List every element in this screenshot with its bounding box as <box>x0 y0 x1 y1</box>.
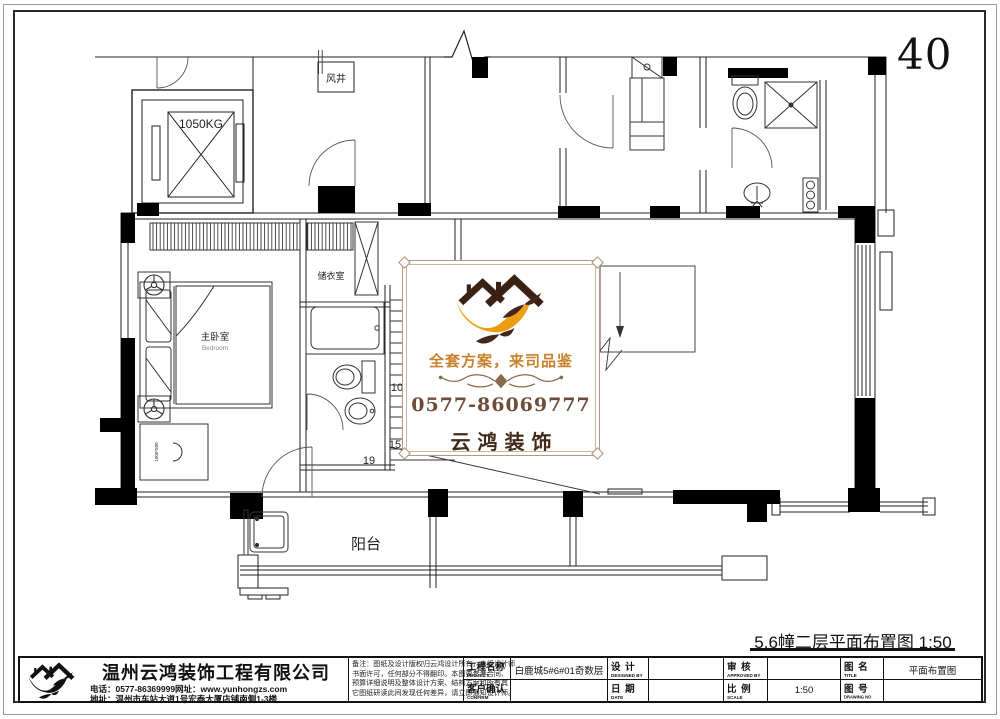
sheet-title-value: 平面布置图 <box>884 663 981 677</box>
date-label-cell: 日 期 DATE <box>607 679 648 701</box>
project-value: 白鹿城5#6#01奇数层 <box>511 663 607 677</box>
watermark-brand: 云鸿装饰 <box>444 426 559 455</box>
title-block-divider <box>348 658 349 701</box>
stair-number-19: 19 <box>363 455 375 467</box>
drawing-sheet: 40 <box>0 0 1000 719</box>
approved-label: 审 核 <box>727 659 767 673</box>
project-value-cell: 白鹿城5#6#01奇数层 <box>510 658 607 679</box>
project-label-cell: 工程名称 PROJECT <box>463 658 510 679</box>
master-bedroom-en-label: Bedroom <box>202 345 228 352</box>
confirm-label-en: CONFIRM <box>467 695 510 700</box>
storage-room-label: 储衣室 <box>317 270 344 281</box>
note-line: 预算详细说明及整体设计方案、结构方案和所有其 <box>352 679 464 689</box>
confirm-value-cell <box>510 679 607 701</box>
cabinet-size-label: 1000*500 <box>154 442 159 462</box>
designed-label-cell: 设 计 DESIGNED BY <box>607 658 648 679</box>
designed-label-en: DESIGNED BY <box>611 673 648 678</box>
company-info: 温州云鸿装饰工程有限公司 电话：0577-86369999网址：www.yunh… <box>84 658 348 701</box>
company-address: 地址：温州市车站大道1号宏泰大厦店铺南侧1-3楼 <box>90 695 348 705</box>
sheet-title-label: 图 名 <box>844 659 883 673</box>
balcony-label: 阳台 <box>351 536 381 553</box>
approved-value-cell <box>767 658 840 679</box>
designed-value-cell <box>648 658 723 679</box>
confirm-label: 客户确认 <box>467 681 510 695</box>
company-name: 温州云鸿装饰工程有限公司 <box>84 659 348 685</box>
title-block: 温州云鸿装饰工程有限公司 电话：0577-86369999网址：www.yunh… <box>18 656 983 703</box>
drawing-no-label-en: DRAWING NO <box>844 695 879 700</box>
drawing-no-label: 图 号 <box>844 681 883 695</box>
copyright-notes: 备注：图纸及设计版权归云鸿设计所有，未经设计师 书面许可，任何部分不得翻印。本图… <box>352 660 464 698</box>
title-block-logo-icon <box>24 661 80 701</box>
plan-labels: 1050KG 风井 储衣室 主卧室 Bedroom 阳台 5 10 15 19 … <box>154 72 408 553</box>
drawing-no-value-cell <box>883 679 981 701</box>
note-line: 它图纸研读此间发现任何差异，请立即通知设计师。 <box>352 689 464 699</box>
sheet-title-label-cell: 图 名 TITLE <box>840 658 883 679</box>
elevator-capacity-label: 1050KG <box>179 117 223 131</box>
company-logo-icon <box>442 271 560 348</box>
approved-label-cell: 审 核 APPROVED BY <box>723 658 767 679</box>
date-label-en: DATE <box>611 695 648 700</box>
sheet-title-value-cell: 平面布置图 <box>883 658 981 679</box>
drawing-title-underline <box>750 648 955 651</box>
ornament-divider-icon <box>423 371 579 391</box>
date-value-cell <box>648 679 723 701</box>
note-line: 备注：图纸及设计版权归云鸿设计所有，未经设计师 <box>352 660 464 670</box>
scale-label-cell: 比 例 SCALE <box>723 679 767 701</box>
scale-label-en: SCALE <box>727 695 767 700</box>
sheet-title-label-en: TITLE <box>844 673 883 678</box>
approved-label-en: APPROVED BY <box>727 673 767 678</box>
master-bedroom-label: 主卧室 <box>201 331 230 343</box>
wind-shaft-label: 风井 <box>326 72 346 85</box>
stair-number-15: 15 <box>389 439 401 451</box>
drawing-no-label-cell: 图 号 DRAWING NO <box>840 679 883 701</box>
note-line: 书面许可，任何部分不得翻印。本图要参考合同、 <box>352 670 464 680</box>
date-label: 日 期 <box>611 681 648 695</box>
project-label: 工程名称 <box>467 659 510 673</box>
watermark-card: 全套方案，来司品鉴 0577-86069777 云鸿装饰 <box>402 260 600 456</box>
scale-value: 1:50 <box>768 685 840 696</box>
watermark-phone: 0577-86069777 <box>411 394 591 416</box>
scale-label: 比 例 <box>727 681 767 695</box>
project-label-en: PROJECT <box>467 673 510 678</box>
designed-label: 设 计 <box>611 659 648 673</box>
scale-value-cell: 1:50 <box>767 679 840 701</box>
confirm-label-cell: 客户确认 CONFIRM <box>463 679 510 701</box>
watermark-tagline: 全套方案，来司品鉴 <box>429 350 573 371</box>
